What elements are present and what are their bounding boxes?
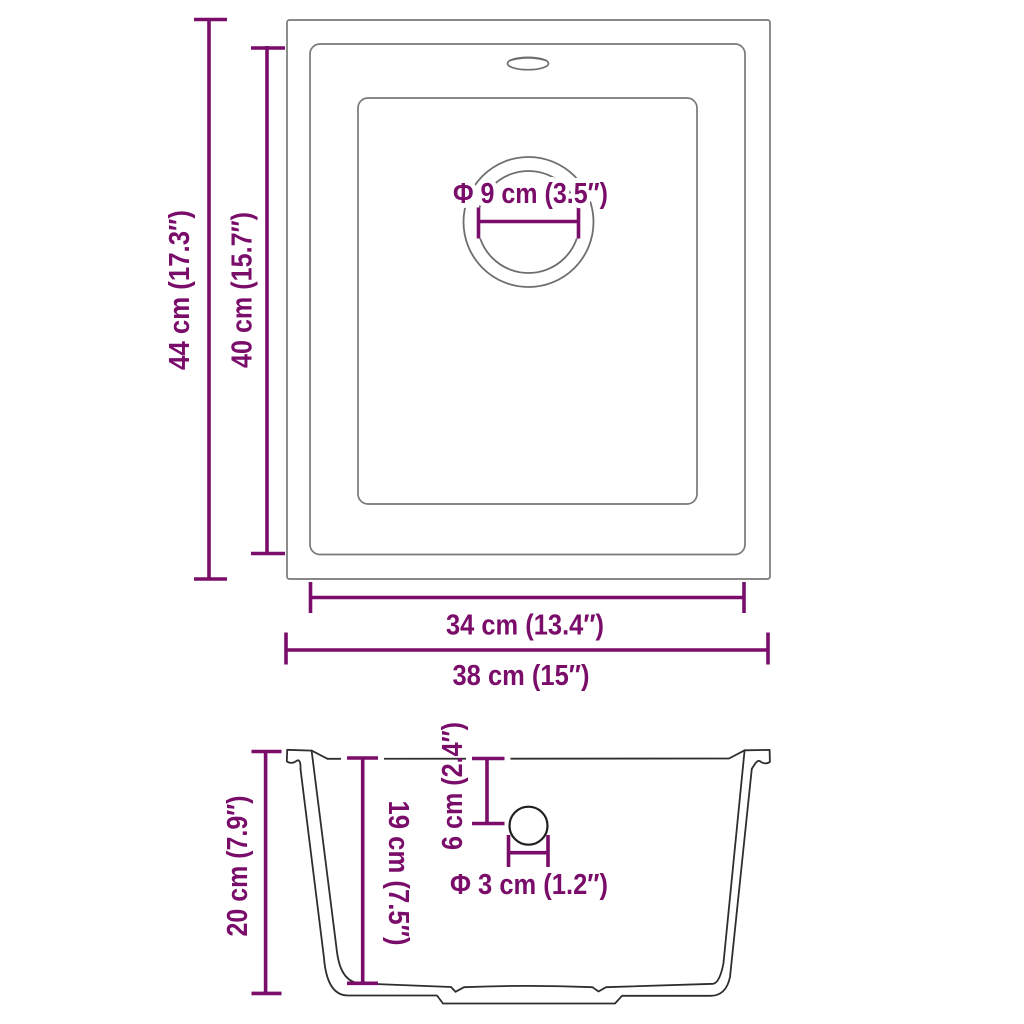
svg-text:Φ 9 cm (3.5″): Φ 9 cm (3.5″) xyxy=(453,178,608,210)
svg-text:34 cm (13.4″): 34 cm (13.4″) xyxy=(446,610,604,642)
svg-text:6 cm (2.4″): 6 cm (2.4″) xyxy=(437,722,469,850)
svg-text:20 cm (7.9″): 20 cm (7.9″) xyxy=(222,796,254,937)
svg-text:44 cm (17.3″): 44 cm (17.3″) xyxy=(164,210,196,370)
svg-text:19 cm (7.5″): 19 cm (7.5″) xyxy=(382,801,414,946)
svg-text:38 cm (15″): 38 cm (15″) xyxy=(453,660,590,692)
svg-text:Φ 3 cm (1.2″): Φ 3 cm (1.2″) xyxy=(450,869,608,901)
svg-text:40 cm (15.7″): 40 cm (15.7″) xyxy=(227,212,259,368)
